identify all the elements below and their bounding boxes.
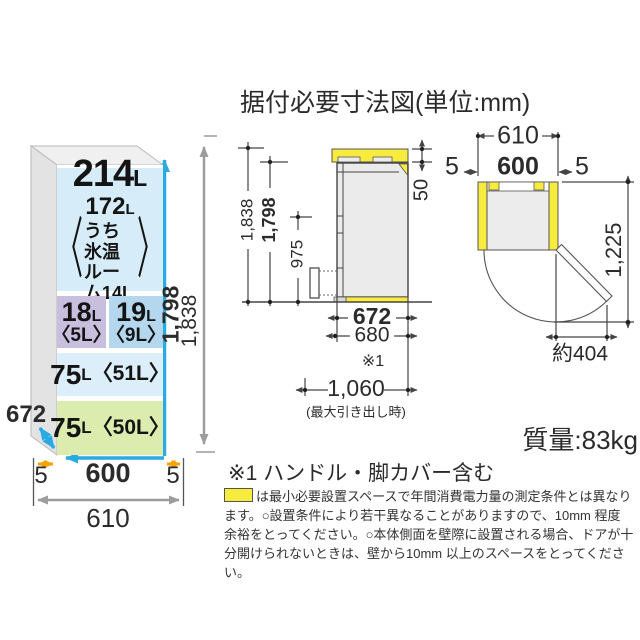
- drawer-open-depth-label: 1,060: [327, 375, 385, 401]
- top-gap-right-label: 5: [575, 153, 589, 181]
- fridge-top-outline: [478, 182, 558, 250]
- yellow-space-swatch: [224, 488, 253, 502]
- front-gap-right-label: 5: [160, 462, 186, 490]
- top-view-drawing: 610 5 600 5 1,225 約404: [440, 120, 640, 385]
- legend-line-3: 余裕をとってください。○本体側面を壁際に設置される場合、ドアが十: [224, 525, 638, 544]
- front-width-label: 600: [66, 458, 150, 489]
- side-depth-handle-label: 680: [354, 324, 389, 347]
- legend-line-4: 分開けられないときは、壁から10mm 以上のスペースをとってください。: [224, 544, 638, 582]
- fridge-side-profile: [310, 163, 408, 302]
- front-total-height-label: 1,838: [178, 261, 202, 381]
- compartment-refrigerator: 214L 〈 172L うち氷温 ルーム14L 〉: [57, 168, 163, 291]
- legend-line-1: は最小必要設置スペースで年間消費電力量の測定条件とは異なり: [224, 487, 638, 506]
- fridge-front-face: 214L 〈 172L うち氷温 ルーム14L 〉 18L 〈5L〉 19L 〈…: [57, 165, 163, 455]
- capacity-sub: 172L: [85, 193, 134, 221]
- top-total-width-label: 610: [497, 122, 539, 150]
- footnote-ref: ※1 ハンドル・脚カバー含む: [228, 457, 494, 487]
- capacity-main: 214L: [73, 155, 147, 193]
- bracket-left: 〈: [57, 215, 83, 281]
- hinge-right: [534, 182, 544, 190]
- side-clearance-left: [478, 182, 487, 250]
- weight-label: 質量:83kg: [440, 420, 638, 457]
- open-door: [484, 245, 612, 322]
- compartment-18l: 18L 〈5L〉: [57, 296, 106, 348]
- ref-mark: ※1: [362, 353, 384, 370]
- ice-temp-label: うち氷温: [84, 221, 136, 262]
- front-total-width-label: 610: [58, 503, 158, 534]
- compartment-75l-50: 75L〈50L〉: [57, 401, 163, 455]
- side-height-label: 1,798: [259, 197, 279, 242]
- legend-line-2: ます。○設置条件により若干異なることがありますので、10mm 程度: [224, 506, 638, 525]
- side-total-height-label: 1,838: [237, 199, 256, 242]
- compartment-19l: 19L 〈9L〉: [109, 296, 163, 348]
- top-width-label: 600: [497, 153, 539, 181]
- side-view-drawing: 1,838 1,798 975 50 672 680 ※1 1,060 (最大引…: [230, 128, 445, 428]
- door-swing-label: 約404: [552, 343, 608, 366]
- door-handle: [310, 268, 319, 298]
- compartment-75l-51: 75L〈51L〉: [57, 353, 163, 396]
- top-clearance-label: 50: [410, 179, 432, 201]
- door-swing-arc: [484, 250, 607, 322]
- side-handle-height-label: 975: [287, 240, 306, 268]
- hinge-left: [489, 182, 499, 190]
- side-clearance-right: [549, 182, 558, 250]
- front-gap-left-label: 5: [28, 462, 54, 490]
- page-title: 据付必要寸法図(単位:mm): [240, 83, 530, 119]
- front-depth-label: 672: [6, 401, 46, 429]
- installation-dimension-diagram: { "title": "据付必要寸法図(単位:mm)", "front_view…: [0, 0, 640, 640]
- top-gap-left-label: 5: [445, 153, 459, 181]
- legend-note: は最小必要設置スペースで年間消費電力量の測定条件とは異なり ます。○設置条件によ…: [224, 487, 638, 582]
- drawer-open-note: (最大引き出し時): [306, 404, 406, 419]
- door-open-depth-label: 1,225: [601, 222, 626, 277]
- minimum-space-highlight: [332, 149, 408, 162]
